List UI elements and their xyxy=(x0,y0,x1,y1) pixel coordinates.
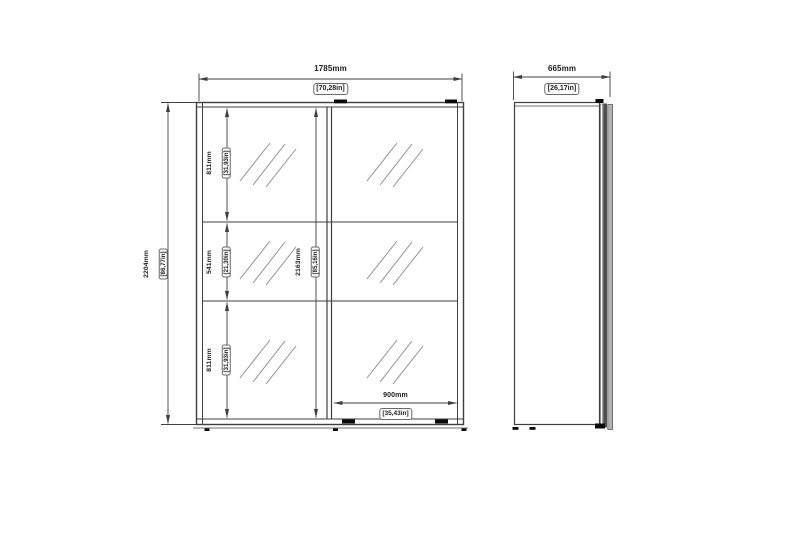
dim-door-width-mm: 900mm xyxy=(379,391,412,400)
side-door-panel-middle xyxy=(603,104,607,428)
dim-depth-inch: [26,17in] xyxy=(544,83,579,95)
mirror-hatch-left-bottom xyxy=(240,340,296,384)
dim-overall-height-mm: 2204mm xyxy=(143,248,151,279)
roller-marks-front xyxy=(205,100,467,432)
dim-interior-height-inch: [85,16in] xyxy=(310,246,319,277)
side-foot-mark-right xyxy=(530,427,536,430)
side-roller-mark-top xyxy=(596,99,604,103)
side-door-panel-front xyxy=(608,105,613,430)
dim-door-width-inch: [35,43in] xyxy=(379,408,412,420)
roller-mark-bottom-left xyxy=(342,420,355,424)
dim-overall-height-label: 2204mm [86,77in] xyxy=(143,248,170,279)
mirror-hatch-left-top xyxy=(240,143,296,187)
side-door-panel-back xyxy=(601,104,603,426)
dim-bottom-section-mm: 811mm xyxy=(206,344,214,375)
cabinet-outline xyxy=(197,103,464,425)
side-foot-mark-left xyxy=(513,427,519,430)
dim-depth-mm: 665mm xyxy=(544,64,579,73)
roller-mark-top-left xyxy=(334,100,347,104)
side-view xyxy=(515,103,613,430)
dim-top-section-inch: [31,93in] xyxy=(221,147,230,178)
dim-door-width-label: 900mm [35,43in] xyxy=(379,391,412,420)
dim-bottom-section-label: 811mm [31,93in] xyxy=(206,344,233,375)
foot-mark-left xyxy=(205,428,210,431)
dim-depth-label: 665mm [26,17in] xyxy=(544,64,579,95)
dim-interior-height-label: 2163mm [85,16in] xyxy=(295,246,322,277)
dim-overall-width-label: 1785mm [70,28in] xyxy=(313,64,348,95)
side-roller-mark-bottom xyxy=(595,424,605,429)
mirror-hatch-right-top xyxy=(367,143,423,187)
front-view xyxy=(193,103,468,429)
side-body-outline xyxy=(515,103,600,425)
dim-interior-height-mm: 2163mm xyxy=(295,246,303,277)
dim-middle-section-mm: 541mm xyxy=(206,246,214,277)
dim-middle-section-inch: [21,30in] xyxy=(221,246,230,277)
roller-mark-top-right xyxy=(445,100,457,104)
dim-overall-width-inch: [70,28in] xyxy=(313,83,348,95)
dim-bottom-section-inch: [31,93in] xyxy=(221,344,230,375)
mirror-hatch-right-bottom xyxy=(367,340,423,384)
dim-top-section-mm: 811mm xyxy=(206,147,214,178)
dim-top-section-label: 811mm [31,93in] xyxy=(206,147,233,178)
dim-overall-width-mm: 1785mm xyxy=(313,64,348,73)
foot-mark-right xyxy=(462,428,467,431)
dim-overall-height-inch: [86,77in] xyxy=(158,248,167,279)
roller-mark-bottom-right xyxy=(435,420,448,424)
mirror-hatch-left-middle xyxy=(240,241,296,285)
foot-mark-center xyxy=(333,428,338,431)
technical-drawing xyxy=(0,0,800,533)
roller-marks-side xyxy=(513,99,606,430)
dim-middle-section-label: 541mm [21,30in] xyxy=(206,246,233,277)
mirror-hatch-right-middle xyxy=(367,241,423,285)
dimension-diagram: 1785mm [70,28in] 665mm [26,17in] 2204mm … xyxy=(0,0,800,533)
